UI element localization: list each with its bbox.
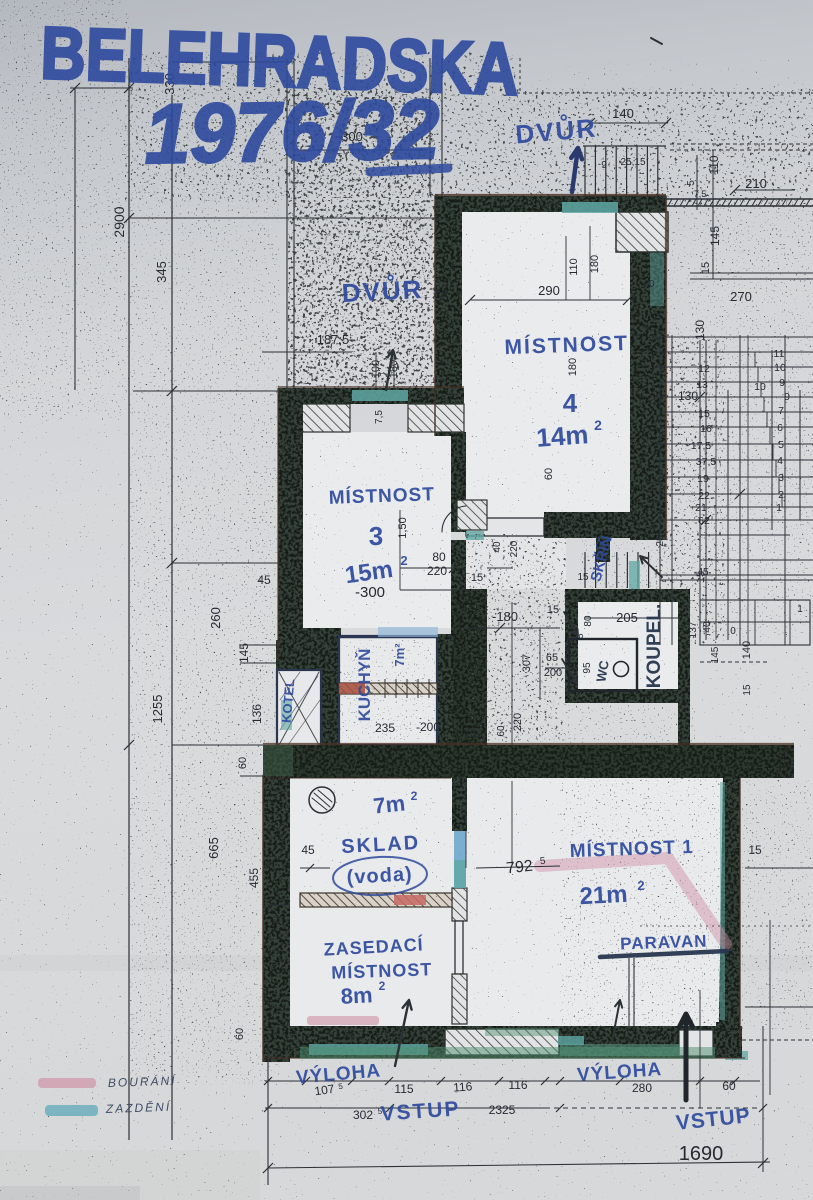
svg-text:145: 145 [710,646,721,663]
svg-text:25: 25 [655,535,666,547]
svg-text:792: 792 [505,858,533,878]
svg-text:40: 40 [492,541,503,553]
svg-text:2325: 2325 [489,1103,516,1117]
svg-text:7m²: 7m² [392,643,407,667]
svg-text:145: 145 [708,226,722,246]
svg-text:15: 15 [700,262,712,274]
svg-text:60: 60 [643,279,655,290]
svg-text:2: 2 [778,489,784,501]
svg-text:1: 1 [797,604,803,615]
svg-text:8m: 8m [340,982,373,1009]
svg-text:115: 115 [394,1082,413,1096]
svg-text:80: 80 [432,550,446,564]
svg-text:7: 7 [778,405,784,417]
svg-text:1,50: 1,50 [397,517,409,538]
svg-text:110: 110 [568,258,580,276]
svg-text:3: 3 [369,521,383,551]
svg-text:110: 110 [707,155,721,174]
svg-text:4: 4 [563,388,578,418]
svg-text:MÍSTNOST 1: MÍSTNOST 1 [569,836,694,862]
svg-text:19: 19 [697,473,709,485]
svg-text:145: 145 [237,643,251,663]
svg-text:140: 140 [741,641,753,659]
svg-text:260: 260 [208,607,223,629]
svg-text:1976/32: 1976/32 [144,82,441,181]
svg-text:60: 60 [496,725,507,737]
svg-text:MÍSTNOST: MÍSTNOST [504,332,629,359]
svg-text:665: 665 [206,837,221,859]
svg-text:PARAVAN: PARAVAN [620,931,708,953]
svg-text:210: 210 [745,176,767,191]
svg-text:2: 2 [594,417,602,433]
svg-text:60: 60 [234,1028,246,1040]
svg-text:3: 3 [778,472,784,484]
svg-text:15: 15 [748,843,762,857]
svg-text:7,5: 7,5 [374,410,385,424]
svg-text:9: 9 [601,160,607,171]
svg-text:12: 12 [698,363,710,375]
svg-text:220: 220 [427,564,447,578]
svg-text:45: 45 [301,843,315,857]
svg-text:5: 5 [778,439,784,451]
svg-text:1: 1 [776,502,782,514]
svg-text:60: 60 [237,757,249,769]
svg-text:21: 21 [695,502,707,514]
svg-text:MÍSTNOST: MÍSTNOST [328,483,435,509]
svg-text:15: 15 [547,604,559,616]
svg-text:15: 15 [464,728,476,740]
svg-text:2: 2 [379,979,386,993]
svg-text:ZAZDĚNÍ: ZAZDĚNÍ [105,1099,172,1116]
svg-text:(voda): (voda) [346,863,413,888]
svg-text:302: 302 [353,1108,373,1122]
svg-text:290: 290 [538,283,560,298]
svg-text:180: 180 [589,255,601,273]
svg-text:0: 0 [730,626,736,637]
svg-text:40: 40 [702,621,713,633]
svg-text:65: 65 [546,652,558,664]
svg-text:17,5: 17,5 [691,440,712,452]
svg-text:5: 5 [686,180,697,186]
svg-text:140: 140 [612,106,634,121]
svg-text:KUCHYŇ: KUCHYŇ [355,649,374,722]
svg-text:136: 136 [250,704,264,724]
svg-text:280: 280 [632,1081,652,1095]
svg-text:-180: -180 [492,609,518,624]
svg-text:10: 10 [754,381,766,393]
svg-text:95: 95 [582,662,593,674]
svg-text:270: 270 [730,289,752,304]
svg-text:DVŮR: DVŮR [341,272,424,308]
svg-text:1255: 1255 [150,695,165,724]
svg-text:15: 15 [742,684,753,696]
svg-text:116: 116 [508,1078,527,1092]
svg-text:15: 15 [698,408,710,420]
svg-text:116: 116 [453,1079,473,1094]
svg-text:205: 205 [616,610,638,625]
svg-text:SKLAD: SKLAD [341,832,421,858]
svg-text:130: 130 [693,320,707,340]
svg-text:45: 45 [257,573,271,587]
svg-text:235: 235 [375,721,395,735]
svg-text:15: 15 [471,572,483,584]
svg-text:14m: 14m [535,419,589,453]
svg-text:9: 9 [779,377,785,389]
svg-text:130: 130 [678,389,698,403]
svg-text:KOUPEL.: KOUPEL. [644,604,665,688]
svg-text:220: 220 [509,540,520,557]
svg-text:21m: 21m [579,881,628,910]
svg-text:455: 455 [247,868,261,888]
svg-text:60: 60 [543,468,555,480]
svg-text:345: 345 [154,261,169,283]
svg-text:11: 11 [774,348,785,360]
svg-text:180: 180 [567,358,579,376]
svg-text:4: 4 [777,455,783,467]
svg-text:25,15: 25,15 [620,157,645,168]
svg-text:200: 200 [544,667,562,679]
svg-text:7,5: 7,5 [694,189,707,199]
svg-text:10: 10 [774,362,786,374]
svg-text:80: 80 [583,615,594,627]
svg-text:37,5: 37,5 [696,456,717,468]
svg-text:6: 6 [777,422,783,434]
svg-text:9: 9 [784,391,790,403]
svg-text:16: 16 [700,423,712,435]
svg-text:7m: 7m [372,790,406,818]
svg-text:2: 2 [400,553,407,568]
svg-text:22: 22 [698,490,710,502]
svg-text:45: 45 [697,567,709,578]
svg-text:1690: 1690 [679,1143,724,1165]
svg-text:220: 220 [512,713,524,731]
svg-text:187,5: 187,5 [317,332,350,347]
svg-text:137: 137 [688,621,699,638]
svg-text:BOURÁNÍ: BOURÁNÍ [108,1073,177,1090]
svg-text:2900: 2900 [111,206,127,237]
svg-text:2: 2 [411,789,418,803]
svg-text:-200: -200 [416,720,440,734]
svg-text:60: 60 [722,1079,736,1093]
svg-text:7,5: 7,5 [433,289,447,300]
svg-text:307: 307 [521,654,533,672]
svg-text:62: 62 [698,515,710,527]
svg-text:100: 100 [370,360,382,378]
svg-text:2: 2 [637,878,644,893]
